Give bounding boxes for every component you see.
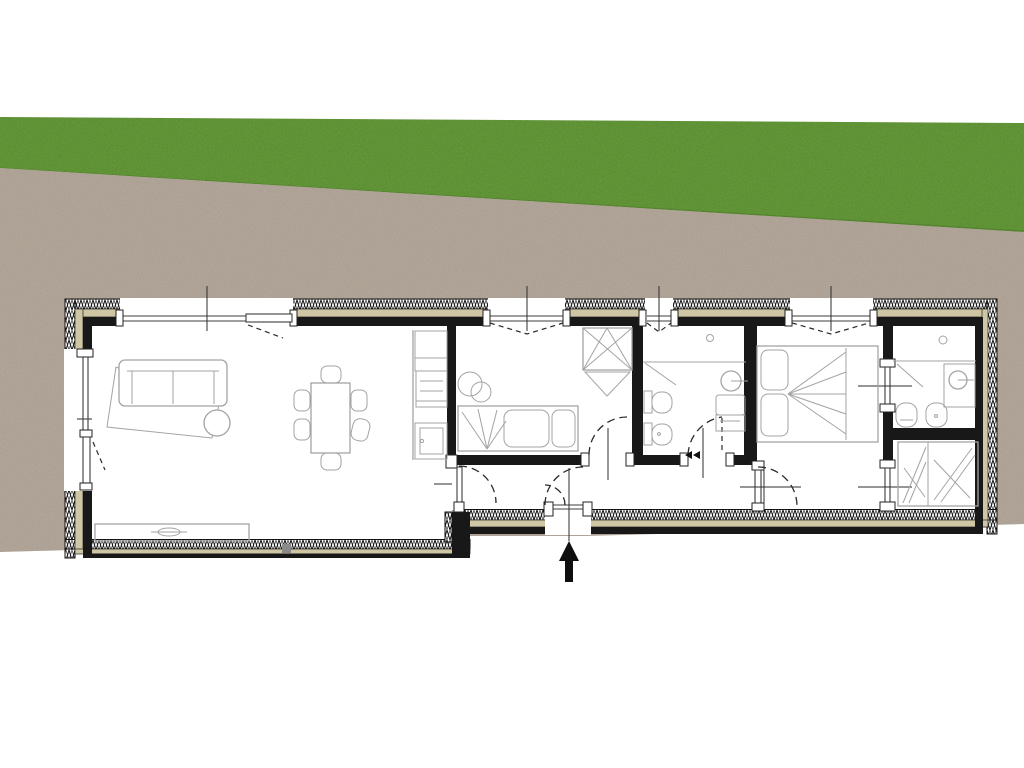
wall-right-core	[975, 317, 983, 527]
terrace-door-leaf	[246, 314, 292, 322]
partition-bath1-bed2	[744, 326, 757, 459]
wall-bottom-right-render	[466, 520, 988, 527]
wall-bottom-left-core	[83, 554, 470, 559]
partition-bed1-bath1	[632, 326, 643, 459]
left-door-leaf	[83, 437, 90, 483]
wall-post	[282, 544, 291, 553]
wall-bottom-left-render	[75, 549, 470, 554]
partition-bed2-bath2-a	[883, 326, 893, 362]
partition-hall-north-a	[456, 455, 582, 465]
wall-right-insulation	[987, 299, 997, 534]
left-door-hinge	[80, 430, 92, 437]
page-white-mask	[0, 536, 1024, 768]
floor-plan-canvas	[0, 0, 1024, 768]
floor-plan-screenshot	[0, 0, 1024, 768]
wall-step-insulation	[445, 512, 452, 542]
wall-bottom-right-insulation	[458, 510, 997, 521]
ottoman	[204, 410, 230, 436]
wall-bottom-right-core	[466, 527, 983, 534]
partition-bath2-closet	[883, 428, 980, 440]
partition-living-bed1	[447, 326, 456, 458]
wall-step-core	[452, 512, 470, 558]
